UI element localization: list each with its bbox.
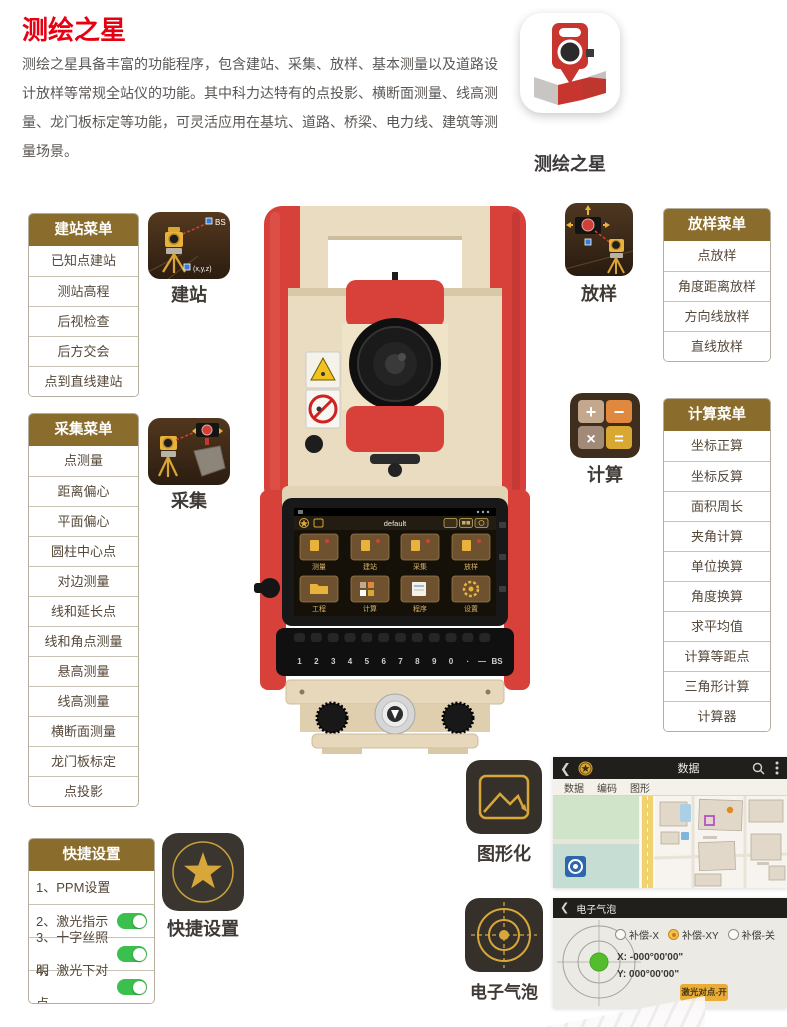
svg-text:1: 1 [297,657,302,666]
product-page: 测绘之星 测绘之星具备丰富的功能程序，包含建站、采集、放样、基本测量以及道路设计… [0,0,787,1027]
station-menu-item[interactable]: 点到直线建站 [29,366,138,396]
stakeout-menu-item[interactable]: 直线放样 [664,331,770,361]
calc-menu-item[interactable]: 角度换算 [664,581,770,611]
collect-menu-item[interactable]: 距离偏心 [29,476,138,506]
collect-menu: 采集菜单 点测量 距离偏心 平面偏心 圆柱中心点 对边测量 线和延长点 线和角点… [28,413,139,807]
back-icon[interactable]: ❮ [553,762,578,775]
radio-icon [728,929,739,940]
toggle-switch[interactable] [117,946,147,962]
map-view[interactable] [553,796,787,888]
device-keyboard[interactable]: 1 2 3 4 5 6 7 8 9 0 · — BS [276,628,514,676]
calc-feature-label: 计算 [565,461,645,487]
radio-option-comp-xy[interactable]: 补偿-XY [668,927,719,942]
svg-text:8: 8 [415,657,420,666]
radio-option-comp-off[interactable]: 补偿-关 [728,927,775,942]
stakeout-menu: 放样菜单 点放样 角度距离放样 方向线放样 直线放样 [663,208,771,362]
bubble-feature-icon[interactable] [465,898,543,972]
svg-text:0: 0 [449,657,454,666]
station-menu-title: 建站菜单 [29,214,138,246]
station-feature-label: 建站 [148,281,230,307]
stakeout-feature-icon[interactable] [565,203,633,276]
calc-menu-item[interactable]: 坐标正算 [664,431,770,461]
collect-menu-item[interactable]: 线和角点测量 [29,626,138,656]
quick-feature-label: 快捷设置 [148,915,258,941]
station-icon-bs-label: BS [215,218,226,227]
station-menu-item[interactable]: 后方交会 [29,336,138,366]
device-screen-toolbar-buttons[interactable] [444,519,488,528]
svg-text:工程: 工程 [312,604,326,613]
svg-text:采集: 采集 [413,562,427,571]
app-logo[interactable] [520,13,620,113]
quick-settings-item-label: 4、激光下对点 [36,954,117,1004]
svg-text:3: 3 [331,657,336,666]
toggle-knob [133,948,146,961]
toggle-switch[interactable] [117,913,147,929]
calc-menu-item[interactable]: 坐标反算 [664,461,770,491]
svg-text:测量: 测量 [312,563,326,571]
collect-menu-item[interactable]: 横断面测量 [29,716,138,746]
collect-menu-item[interactable]: 线高测量 [29,686,138,716]
collect-feature-label: 采集 [148,487,230,513]
stakeout-menu-item[interactable]: 角度距离放样 [664,271,770,301]
app-logo-label: 测绘之星 [520,150,620,176]
collect-feature-icon[interactable] [148,418,230,485]
page-description: 测绘之星具备丰富的功能程序，包含建站、采集、放样、基本测量以及道路设计放样等常规… [22,50,504,166]
calc-menu-item[interactable]: 夹角计算 [664,521,770,551]
svg-text:BS: BS [491,657,503,666]
station-menu-item[interactable]: 测站高程 [29,276,138,306]
svg-text:5: 5 [365,657,370,666]
calc-menu-item[interactable]: 计算器 [664,701,770,731]
quick-settings-title: 快捷设置 [29,839,154,871]
calc-menu-item[interactable]: 面积周长 [664,491,770,521]
radio-icon [668,929,679,940]
station-menu-item[interactable]: 后视检查 [29,306,138,336]
svg-text:—: — [478,657,486,666]
collect-menu-item[interactable]: 悬高测量 [29,656,138,686]
svg-text:2: 2 [314,657,319,666]
quick-settings-item[interactable]: 4、激光下对点 [29,970,154,1003]
calc-menu-item[interactable]: 计算等距点 [664,641,770,671]
tab-data[interactable]: 数据 [564,780,584,795]
collect-menu-item[interactable]: 平面偏心 [29,506,138,536]
stakeout-feature-label: 放样 [560,280,638,306]
back-icon[interactable]: ❮ [553,903,576,914]
calc-menu-item[interactable]: 求平均值 [664,611,770,641]
data-screenshot-title: 数据 [625,760,752,776]
svg-text:9: 9 [432,657,437,666]
stakeout-menu-title: 放样菜单 [664,209,770,241]
tab-graphic[interactable]: 图形 [630,780,650,795]
toggle-switch[interactable] [117,979,147,995]
graphic-feature-icon[interactable] [466,760,542,834]
collect-menu-item[interactable]: 龙门板标定 [29,746,138,776]
quick-settings-item-label: 1、PPM设置 [36,871,110,904]
toggle-knob [133,915,146,928]
station-feature-icon[interactable]: BS (x,y,z) [148,212,230,279]
search-icon[interactable] [752,762,765,775]
graphic-feature-label: 图形化 [454,840,554,866]
data-screenshot: ❮ 数据 数据 编码 图形 [553,757,787,888]
stakeout-menu-item[interactable]: 方向线放样 [664,301,770,331]
svg-text:设置: 设置 [464,604,478,613]
stakeout-menu-item[interactable]: 点放样 [664,241,770,271]
calc-menu: 计算菜单 坐标正算 坐标反算 面积周长 夹角计算 单位换算 角度换算 求平均值 … [663,398,771,732]
svg-text:建站: 建站 [363,562,377,571]
quick-settings-menu: 快捷设置 1、PPM设置 2、激光指示 3、十字丝照明 4、激光下对点 [28,838,155,1004]
bubble-screenshot-title: 电子气泡 [576,901,616,916]
bubble-screenshot: ❮ 电子气泡 补偿-X 补偿-XY [553,898,787,1008]
collect-menu-item[interactable]: 点投影 [29,776,138,806]
station-menu: 建站菜单 已知点建站 测站高程 后视检查 后方交会 点到直线建站 [28,213,139,397]
bubble-feature-label: 电子气泡 [444,978,564,1003]
calc-menu-item[interactable]: 三角形计算 [664,671,770,701]
calc-minus-glyph: − [614,402,625,422]
bubble-y-value: Y: 000°00'00" [617,969,679,980]
collect-menu-item[interactable]: 线和延长点 [29,596,138,626]
bubble-x-value: X: -000°00'00" [617,952,683,963]
calc-multiply-glyph: × [586,431,595,448]
svg-text:程序: 程序 [413,604,427,613]
overflow-menu-icon[interactable] [775,761,779,775]
total-station-map-icon [520,13,620,113]
device-screen-title: default [384,519,407,528]
calc-menu-item[interactable]: 单位换算 [664,551,770,581]
radio-option-comp-x[interactable]: 补偿-X [615,927,659,942]
compensation-radio-group: 补偿-X 补偿-XY 补偿-关 [615,927,775,942]
star-icon [578,761,593,776]
collect-menu-item[interactable]: 对边测量 [29,566,138,596]
svg-text:6: 6 [381,657,386,666]
radio-icon [615,929,626,940]
total-station-photo: default 测量 建站 采集 [230,192,560,758]
quick-feature-icon[interactable] [162,833,244,911]
calc-menu-title: 计算菜单 [664,399,770,431]
calc-plus-glyph: + [586,402,597,422]
station-icon-xyz-label: (x,y,z) [193,266,212,273]
svg-text:·: · [466,657,469,666]
quick-settings-item[interactable]: 1、PPM设置 [29,871,154,904]
collect-menu-item[interactable]: 点测量 [29,446,138,476]
toggle-knob [133,981,146,994]
collect-menu-title: 采集菜单 [29,414,138,446]
calc-equals-glyph: = [614,431,623,448]
collect-menu-item[interactable]: 圆柱中心点 [29,536,138,566]
station-menu-item[interactable]: 已知点建站 [29,246,138,276]
calc-feature-icon[interactable]: + − × = [570,393,640,458]
tab-code[interactable]: 编码 [597,780,617,795]
svg-text:放样: 放样 [464,562,478,571]
svg-text:计算: 计算 [363,604,377,613]
svg-text:4: 4 [348,657,353,666]
page-title: 测绘之星 [22,10,126,47]
svg-text:7: 7 [398,657,403,666]
